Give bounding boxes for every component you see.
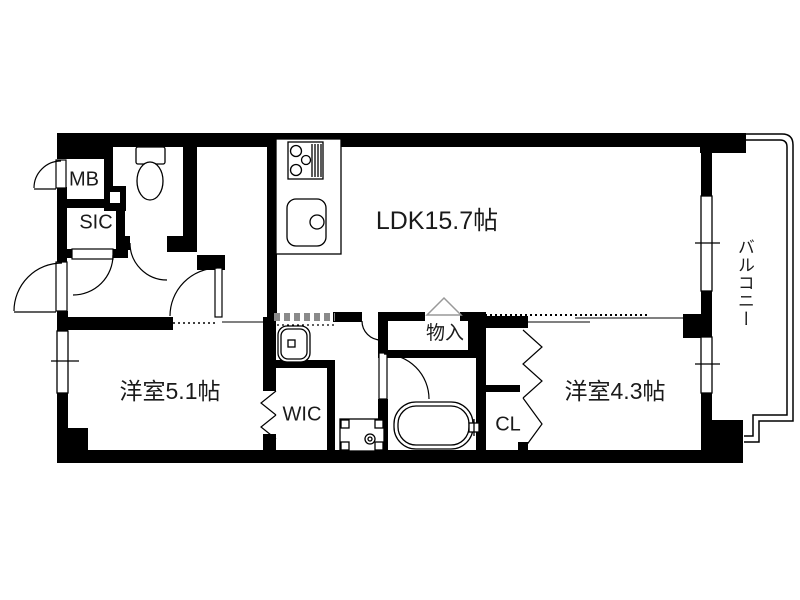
wall-segment <box>486 385 520 392</box>
storage-label: 物入 <box>426 324 464 344</box>
wall-segment <box>263 317 276 391</box>
wall-segment <box>57 317 173 330</box>
bedroom1-window <box>57 331 68 393</box>
bedroom1-door-arc <box>170 268 217 316</box>
cl-folding-door <box>523 330 542 450</box>
bedroom2-balcony-window <box>701 337 712 393</box>
wall-segment <box>104 147 113 188</box>
wall-segment <box>701 420 743 463</box>
wall-segment <box>701 290 712 338</box>
wall-segment <box>701 392 712 421</box>
burner <box>302 156 311 165</box>
vanity-faucet <box>288 340 295 347</box>
washing-machine-pan <box>340 419 384 451</box>
wall-segment <box>58 133 705 147</box>
bedroom1-label: 洋室5.1帖 <box>120 379 221 403</box>
toilet-bowl <box>137 162 163 200</box>
sic-door-leaf <box>72 249 113 259</box>
floor-plan: MB SIC LDK15.7帖 物入 WIC CL 洋室5.1帖 洋室4.3帖 … <box>0 0 800 600</box>
wall-segment <box>57 450 743 463</box>
toilet-door-arc <box>130 243 167 280</box>
column-notch <box>110 192 120 203</box>
wall-segment <box>327 360 335 452</box>
burner <box>291 146 302 157</box>
toilet-fixture <box>136 147 165 200</box>
wic-label: WIC <box>283 405 322 426</box>
burner <box>291 165 302 176</box>
wall-segment <box>378 350 478 358</box>
wall-segment <box>701 147 712 197</box>
sliding-door-marker <box>427 298 461 315</box>
kitchen-counter <box>276 139 341 254</box>
bedroom1-door-leaf <box>215 268 222 317</box>
wall-segment <box>113 249 128 258</box>
ldk-label: LDK15.7帖 <box>376 208 498 234</box>
mb-label: MB <box>69 170 99 191</box>
sic-label: SIC <box>79 213 112 234</box>
floor-plan-drawing <box>0 0 800 600</box>
wall-segment <box>518 442 528 452</box>
mb-door-leaf <box>56 160 66 188</box>
bedroom2-label: 洋室4.3帖 <box>565 379 666 403</box>
wall-segment <box>183 133 197 252</box>
wall-segment <box>57 428 88 452</box>
wall-segment <box>120 236 130 250</box>
entrance-door-arc <box>14 263 62 311</box>
sic-door-arc <box>73 255 113 295</box>
wall-segment <box>333 312 362 322</box>
vanity-sink <box>278 326 310 362</box>
wic-folding-door <box>261 391 276 439</box>
cl-label: CL <box>495 415 521 436</box>
entrance-door-leaf <box>56 262 67 311</box>
wall-segment <box>378 312 388 354</box>
balcony-label: バルコニー <box>735 238 753 328</box>
kitchen-faucet <box>310 215 324 229</box>
bathroom-door-arc <box>384 354 429 399</box>
bathtub <box>394 402 479 449</box>
bathroom-door-leaf <box>379 353 387 399</box>
wall-segment <box>57 249 72 258</box>
wall-segment <box>59 199 110 208</box>
doors <box>14 160 429 399</box>
